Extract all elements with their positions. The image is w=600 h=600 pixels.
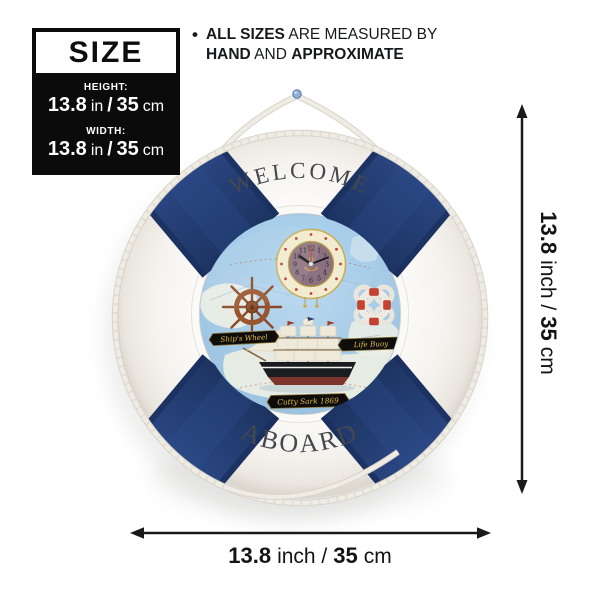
plaque-cutty-sark-label: Cutty Sark 1869	[277, 396, 339, 407]
width-value-in: 13.8	[48, 138, 87, 161]
height-unit-in: in	[91, 98, 103, 116]
height-dimension-label: 13.8 inch / 35 cm	[531, 173, 561, 413]
width-dim-unit2: cm	[364, 545, 392, 569]
note-line1-rest: ARE MEASURED BY	[285, 26, 437, 43]
note-line2-bold2: APPROXIMATE	[291, 46, 404, 63]
height-dim-num2: 35	[535, 316, 561, 340]
size-panel: SIZE HEIGHT: 13.8 in / 35 cm WIDTH: 13.8…	[32, 28, 180, 175]
clock-numeral: 5	[317, 276, 321, 283]
note-line2-mid: AND	[251, 46, 291, 63]
height-value-in: 13.8	[48, 94, 87, 117]
hanging-pin	[293, 90, 301, 98]
measurement-note: • ALL SIZES ARE MEASURED BY HAND AND APP…	[192, 25, 437, 65]
note-line2-bold1: HAND	[206, 46, 251, 63]
size-title: SIZE	[69, 36, 144, 70]
clock-numeral: 3	[325, 262, 329, 269]
infographic-canvas: ⚓ 12 1 2 3 4 5 6 7 8 9 10 11	[0, 0, 600, 600]
bullet-icon: •	[192, 24, 198, 65]
note-line-2: HAND AND APPROXIMATE	[206, 45, 437, 65]
note-line1-bold: ALL SIZES	[206, 26, 285, 43]
height-value: 13.8 in / 35 cm	[36, 94, 176, 117]
width-unit-in: in	[91, 142, 103, 160]
height-dim-unit1: inch /	[535, 260, 559, 310]
height-unit-cm: cm	[143, 98, 164, 116]
width-dim-num1: 13.8	[228, 543, 271, 569]
width-dim-unit1: inch /	[277, 545, 327, 569]
height-dimension-arrow	[517, 104, 528, 494]
note-line-1: ALL SIZES ARE MEASURED BY	[206, 25, 437, 45]
size-title-box: SIZE	[36, 32, 176, 73]
clock-numeral: 4	[323, 270, 327, 277]
width-dimension-label: 13.8 inch / 35 cm	[130, 543, 490, 573]
width-value-slash: /	[107, 139, 112, 161]
plaque-life-buoy-label: Life Buoy	[353, 339, 390, 349]
width-label: WIDTH:	[36, 126, 176, 137]
clock-numeral: 6	[309, 278, 313, 285]
width-dim-num2: 35	[333, 543, 357, 569]
height-dim-unit2: cm	[535, 347, 559, 375]
height-value-slash: /	[107, 95, 112, 117]
height-label: HEIGHT:	[36, 82, 176, 93]
height-value-cm: 35	[117, 94, 139, 117]
height-dim-num1: 13.8	[535, 211, 561, 254]
width-value: 13.8 in / 35 cm	[36, 138, 176, 161]
width-unit-cm: cm	[143, 142, 164, 160]
width-dimension-arrow	[130, 527, 491, 538]
width-value-cm: 35	[117, 138, 139, 161]
measurement-note-lines: ALL SIZES ARE MEASURED BY HAND AND APPRO…	[206, 25, 437, 65]
